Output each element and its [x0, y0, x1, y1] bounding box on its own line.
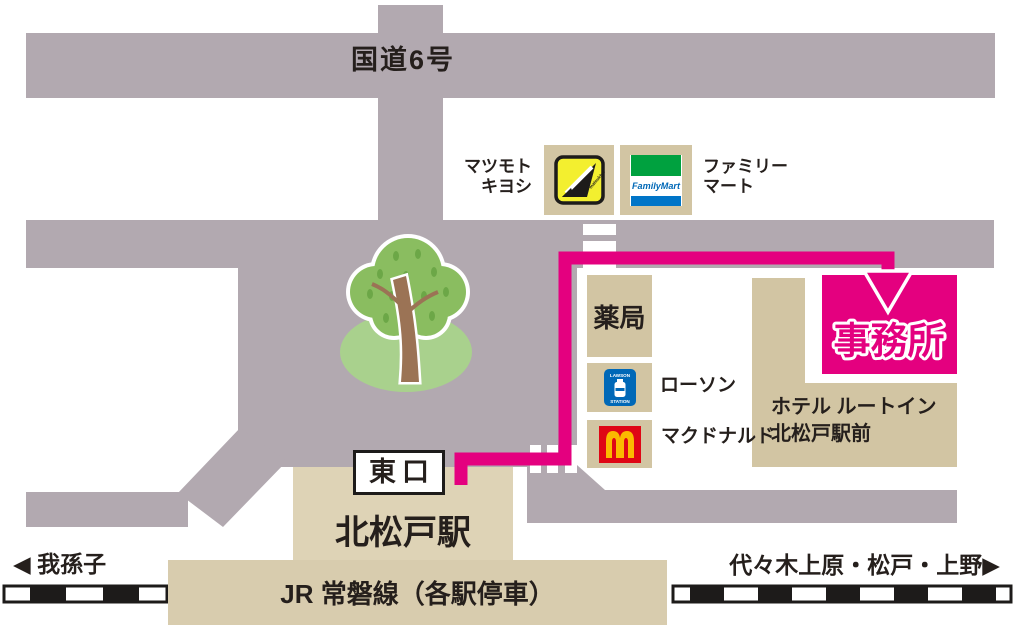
road-route6 — [26, 33, 995, 98]
lawson-logo-top-text: LAWSON — [609, 373, 630, 378]
left-arrow-icon: ◀ — [13, 551, 31, 577]
lawson-logo-icon: LAWSON STATION — [604, 369, 636, 406]
hotel-label-line2: 北松戸駅前 — [771, 421, 937, 448]
station-name-label: 北松戸駅 — [293, 513, 513, 553]
pharmacy-building: 薬局 — [587, 275, 652, 357]
lawson-store-box: LAWSON STATION — [587, 363, 652, 412]
mcdonalds-logo-icon — [599, 426, 641, 463]
mcdonalds-store-box — [587, 420, 652, 468]
matsukiyo-label-line2: キヨシ — [437, 177, 532, 197]
matsukiyo-label-line1: マツモト — [437, 157, 532, 177]
mcdonalds-label: マクドナルド — [661, 426, 775, 448]
crosswalk-station-bar — [530, 445, 541, 473]
right-arrow-icon: ▶ — [982, 552, 1000, 578]
crosswalk-station-bar — [565, 445, 577, 473]
office-label: 事務所 — [834, 321, 945, 362]
familymart-label-line2: マート — [703, 177, 788, 197]
familymart-label: ファミリー マート — [703, 157, 788, 197]
road-lower-left — [26, 492, 188, 527]
lawson-label: ローソン — [660, 375, 736, 397]
direction-right-text: 代々木上原・松戸・上野 — [729, 552, 982, 578]
line-name-label: JR 常磐線（各駅停車） — [168, 579, 667, 610]
crosswalk-station-bar — [547, 445, 558, 473]
direction-left-text: 我孫子 — [37, 551, 106, 577]
hotel-label-line1: ホテル ルートイン — [771, 394, 937, 421]
matsukiyo-store-box: matsukiyo — [544, 145, 614, 215]
hotel-label: ホテル ルートイン 北松戸駅前 — [771, 394, 937, 448]
road-lower-right — [540, 490, 957, 523]
east-exit-sign: 東口 — [353, 450, 445, 495]
access-map: matsukiyo FamilyMart 薬局 LAWSON STATION — [0, 0, 1024, 631]
pharmacy-label: 薬局 — [593, 298, 645, 335]
direction-left-label: ◀ 我孫子 — [13, 551, 106, 578]
direction-right-label: 代々木上原・松戸・上野▶ — [690, 552, 1000, 579]
office-destination-box: 事務所 — [822, 275, 957, 374]
familymart-logo-icon: FamilyMart — [630, 155, 682, 206]
matsukiyo-logo-icon: matsukiyo — [554, 155, 605, 205]
matsukiyo-label: マツモト キヨシ — [437, 157, 532, 197]
east-exit-label: 東口 — [363, 457, 435, 489]
crosswalk-north-bar — [583, 224, 616, 235]
crosswalk-north-bar — [583, 258, 616, 268]
crosswalk-north-bar — [583, 241, 616, 252]
familymart-label-line1: ファミリー — [703, 157, 788, 177]
route6-road-label: 国道6号 — [300, 45, 506, 77]
road-corner-chamfer — [577, 465, 605, 490]
office-label-graphic: 事務所 — [822, 275, 957, 374]
lawson-logo-bottom-text: STATION — [610, 399, 630, 404]
familymart-store-box: FamilyMart — [620, 145, 692, 215]
familymart-logo-text: FamilyMart — [632, 181, 681, 191]
